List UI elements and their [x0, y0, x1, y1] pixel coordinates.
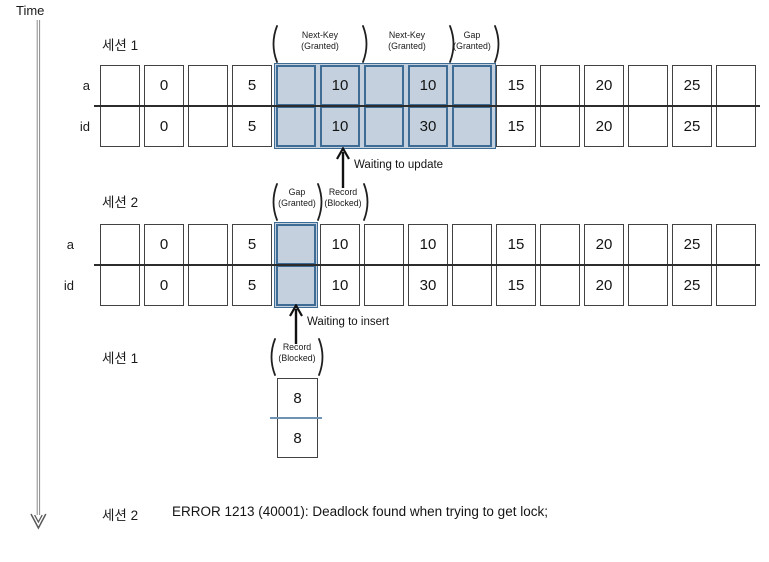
table-cell: 25 — [672, 65, 712, 106]
table-cell: 0 — [144, 224, 184, 265]
table-cell — [716, 106, 756, 147]
row-label-id: id — [46, 265, 74, 306]
deadlock-error-text: ERROR 1213 (40001): Deadlock found when … — [172, 504, 548, 519]
table-cell — [452, 224, 492, 265]
table-cell — [100, 265, 140, 306]
table-cell: 20 — [584, 106, 624, 147]
table-cell-locked: 10 — [408, 65, 448, 106]
row-label-a: a — [62, 65, 90, 106]
table-cell: 15 — [496, 65, 536, 106]
table-cell: 5 — [232, 65, 272, 106]
lock-label-gap: Gap (Granted) — [451, 30, 493, 52]
table-cell — [188, 265, 228, 306]
table-cell-locked: 10 — [320, 65, 360, 106]
table-cell — [716, 65, 756, 106]
table-cell-locked: 10 — [320, 106, 360, 147]
table-cell-locked — [452, 106, 492, 147]
table-cell — [540, 106, 580, 147]
lock-type: Gap — [289, 187, 306, 198]
table-cell — [716, 224, 756, 265]
lock-label-record-s2: Record (Blocked) — [321, 187, 365, 209]
table-cell: 0 — [144, 265, 184, 306]
table-row-divider — [94, 105, 760, 106]
session2-bottom-title: 세션 2 — [102, 504, 138, 524]
lock-type: Record — [283, 342, 311, 353]
lock-state: (Granted) — [278, 198, 316, 209]
lock-state: (Granted) — [388, 41, 426, 52]
lock-label-nextkey-1: Next-Key (Granted) — [280, 30, 360, 52]
time-axis-label: Time — [16, 3, 44, 18]
table-cell: 25 — [672, 106, 712, 147]
table-cell — [188, 224, 228, 265]
table-cell — [540, 224, 580, 265]
table-cell — [188, 65, 228, 106]
session2-title: 세션 2 — [102, 191, 138, 211]
table-cell — [540, 265, 580, 306]
waiting-insert-arrow-icon — [283, 304, 309, 346]
table-cell-locked: 30 — [408, 106, 448, 147]
table-cell: 15 — [496, 106, 536, 147]
table-cell — [100, 65, 140, 106]
lock-label-record-blocked: Record (Blocked) — [275, 342, 319, 364]
diagram-canvas: Time 세션 1 Next-Key (Granted) Next-Key (G… — [0, 0, 769, 562]
table-cell: 25 — [672, 265, 712, 306]
table-cell: 5 — [232, 265, 272, 306]
table-cell — [100, 106, 140, 147]
table-cell: 10 — [408, 224, 448, 265]
waiting-update-label: Waiting to update — [354, 159, 443, 171]
lock-label-gap-s2: Gap (Granted) — [276, 187, 318, 209]
table-cell — [628, 106, 668, 147]
table-cell — [628, 224, 668, 265]
lock-type: Gap — [464, 30, 481, 41]
table-cell: 0 — [144, 65, 184, 106]
table-cell — [716, 265, 756, 306]
row-label-a: a — [46, 224, 74, 265]
table-cell: 15 — [496, 265, 536, 306]
table-cell — [452, 265, 492, 306]
session1-top-title: 세션 1 — [102, 34, 138, 54]
table-cell-locked — [276, 65, 316, 106]
table-cell: 15 — [496, 224, 536, 265]
table-cell — [628, 265, 668, 306]
table-cell: 20 — [584, 265, 624, 306]
table-cell — [628, 65, 668, 106]
brace-mark-icon — [268, 25, 280, 63]
table-cell: 5 — [232, 106, 272, 147]
table-cell: 0 — [144, 106, 184, 147]
table-cell — [364, 265, 404, 306]
table-cell: 5 — [232, 224, 272, 265]
table-cell-locked — [364, 106, 404, 147]
lock-state: (Granted) — [453, 41, 491, 52]
table-cell — [100, 224, 140, 265]
table-cell: 10 — [320, 265, 360, 306]
lock-state: (Granted) — [301, 41, 339, 52]
session1-bottom-title: 세션 1 — [102, 347, 138, 367]
table-cell — [540, 65, 580, 106]
waiting-update-arrow-icon — [330, 147, 356, 190]
row-label-id: id — [62, 106, 90, 147]
brace-mark-icon — [492, 25, 504, 63]
table-cell-locked — [364, 65, 404, 106]
table-cell-locked — [276, 224, 316, 265]
insert-row-divider — [270, 417, 322, 419]
table-cell — [188, 106, 228, 147]
table-cell: 25 — [672, 224, 712, 265]
lock-label-nextkey-2: Next-Key (Granted) — [368, 30, 446, 52]
table-cell — [364, 224, 404, 265]
lock-state: (Blocked) — [324, 198, 361, 209]
table-cell-locked — [452, 65, 492, 106]
insert-cell-id: 8 — [277, 418, 318, 458]
lock-type: Record — [329, 187, 357, 198]
table-cell: 30 — [408, 265, 448, 306]
lock-state: (Blocked) — [278, 353, 315, 364]
table-cell-locked — [276, 106, 316, 147]
table-cell-locked — [276, 265, 316, 306]
insert-cell-a: 8 — [277, 378, 318, 418]
waiting-insert-label: Waiting to insert — [307, 316, 389, 328]
table-row-divider — [94, 264, 760, 265]
lock-type: Next-Key — [302, 30, 338, 41]
table-cell: 20 — [584, 65, 624, 106]
table-cell: 10 — [320, 224, 360, 265]
table-cell: 20 — [584, 224, 624, 265]
lock-type: Next-Key — [389, 30, 425, 41]
